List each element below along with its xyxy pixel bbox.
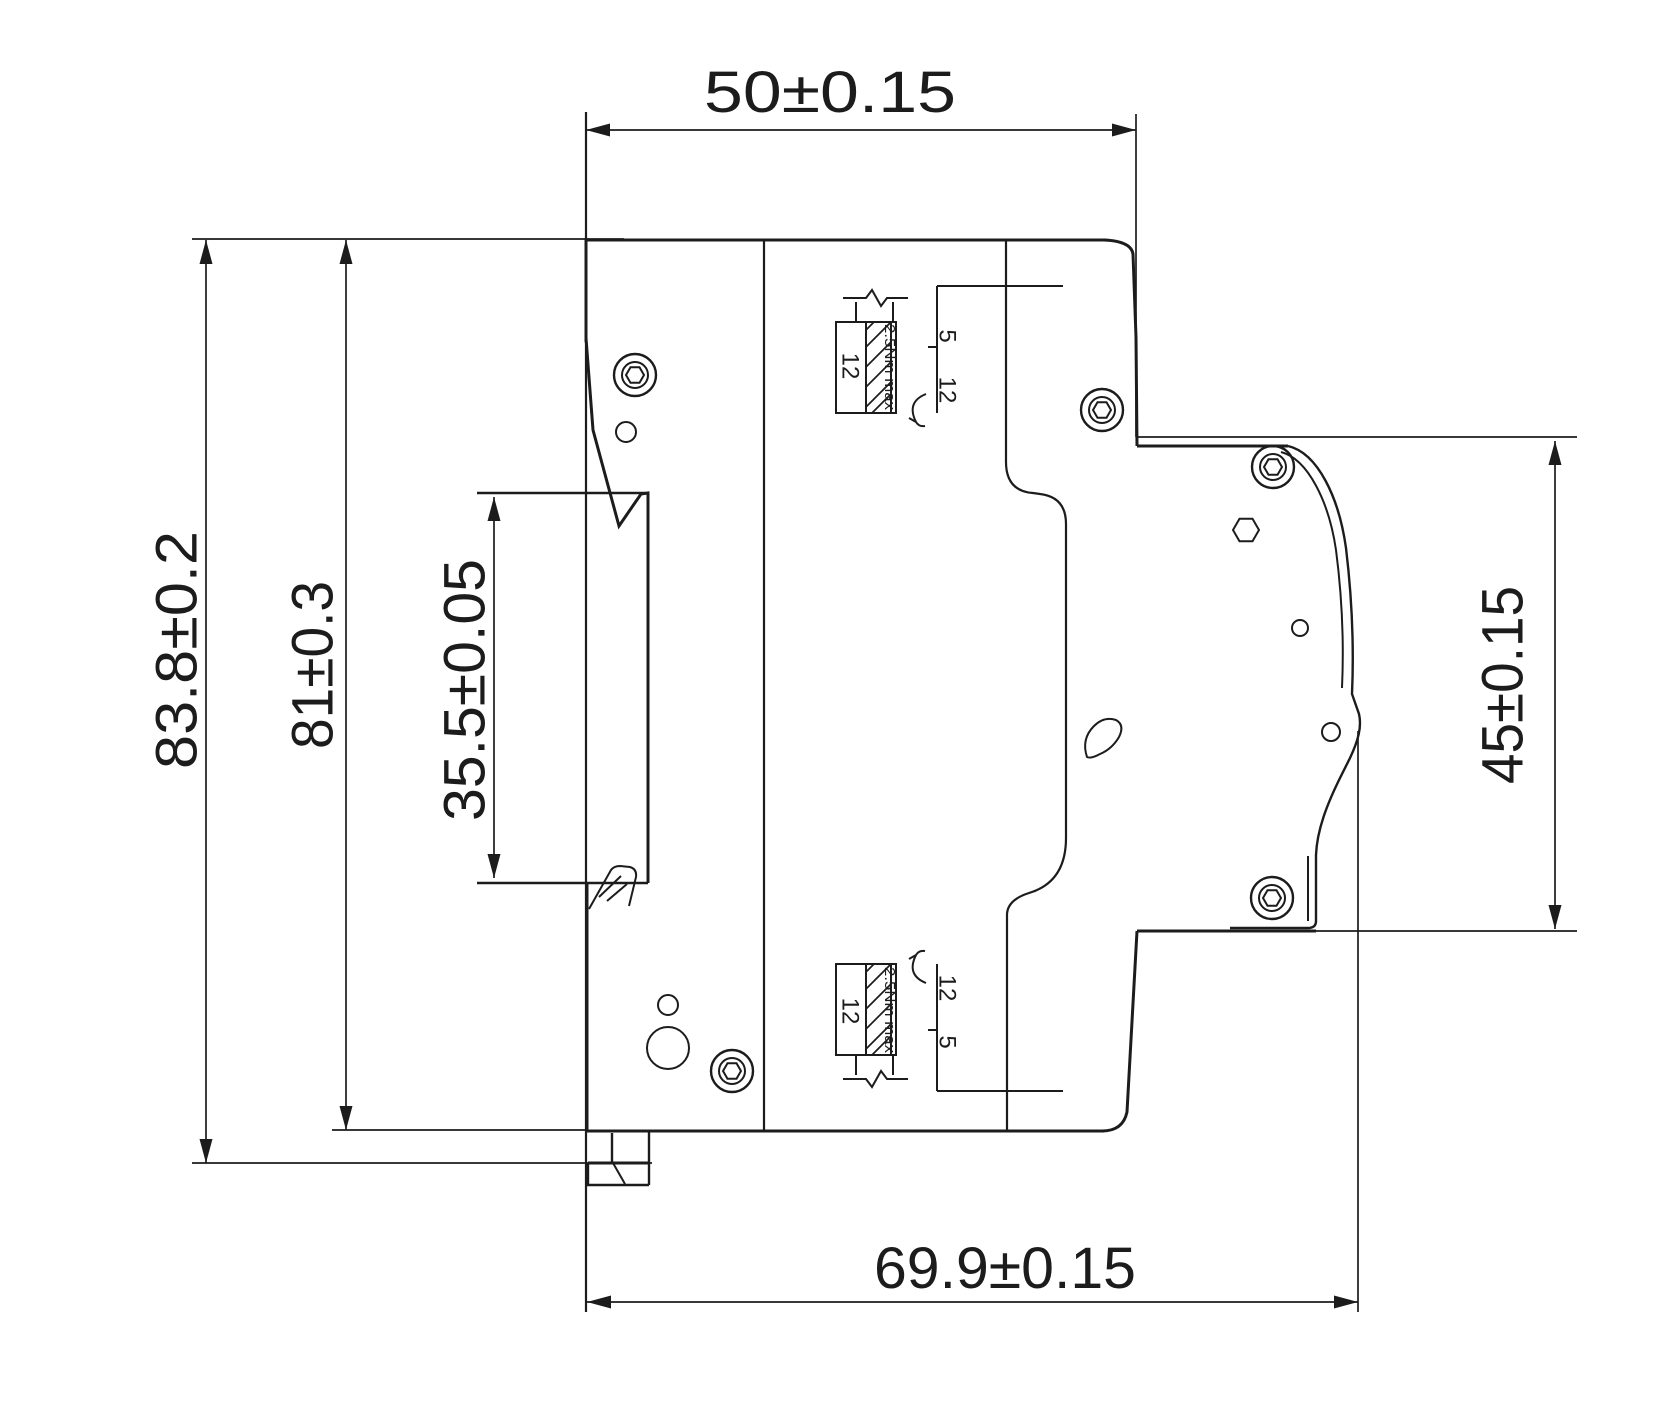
torque-label: 2.5Nm max (881, 324, 898, 411)
hole-large-rear-bottom (647, 1027, 689, 1069)
technical-drawing: 12 2.5Nm max 5 12 12 2.5Nm max 12 5 50±0… (0, 0, 1664, 1418)
screw-front-top-right (1252, 446, 1294, 488)
terminal-detail-top: 12 2.5Nm max 5 12 (836, 286, 1063, 426)
strip-length-label: 12 (837, 998, 864, 1025)
dim-label-height-overall: 83.8±0.2 (144, 531, 209, 769)
depth-mark-lower: 5 (934, 1035, 961, 1048)
molded-slot (1085, 719, 1121, 758)
terminal-detail-bottom: 12 2.5Nm max 12 5 (836, 951, 1063, 1091)
hole-small-rear-top (616, 422, 636, 442)
housing-seam-lines (764, 240, 1066, 1131)
break-line-icon (843, 290, 908, 306)
dim-label-height-din-slot: 35.5±0.05 (432, 559, 497, 821)
depth-mark-lower: 12 (934, 377, 961, 404)
dim-height-overall: 83.8±0.2 (144, 239, 652, 1163)
dim-label-height-front: 45±0.15 (1470, 586, 1535, 784)
strip-length-label: 12 (837, 353, 864, 380)
dim-height-front: 45±0.15 (1470, 441, 1561, 929)
wire-entry-icon (909, 951, 926, 983)
dim-depth-bottom: 69.9±0.15 (587, 731, 1358, 1312)
screw-front-top-left (1081, 389, 1123, 431)
break-line-icon (843, 1071, 908, 1087)
screw-front-bottom (1251, 877, 1293, 919)
latch-pivot-hole (1322, 723, 1340, 741)
dim-height-din-slot: 35.5±0.05 (432, 497, 500, 878)
wire-entry-icon (909, 394, 926, 426)
hole-small-front (1292, 620, 1308, 636)
depth-mark-upper: 5 (934, 329, 961, 342)
body-outline (477, 240, 1577, 1131)
din-clip (589, 866, 636, 909)
depth-mark-upper: 12 (934, 975, 961, 1002)
screw-rear-bottom (711, 1050, 753, 1092)
hole-small-rear-bottom (658, 995, 678, 1015)
torque-label: 2.5Nm max (881, 967, 898, 1054)
dim-width-top: 50±0.15 (586, 60, 1136, 1312)
dim-label-depth-bottom: 69.9±0.15 (874, 1236, 1136, 1301)
hex-recess (1233, 519, 1259, 542)
drawing-canvas: 12 2.5Nm max 5 12 12 2.5Nm max 12 5 50±0… (0, 0, 1664, 1418)
dim-label-width-top: 50±0.15 (704, 60, 956, 125)
mounting-foot (588, 1131, 649, 1185)
screw-rear-top (614, 354, 656, 396)
dim-label-height-body: 81±0.3 (280, 581, 345, 749)
